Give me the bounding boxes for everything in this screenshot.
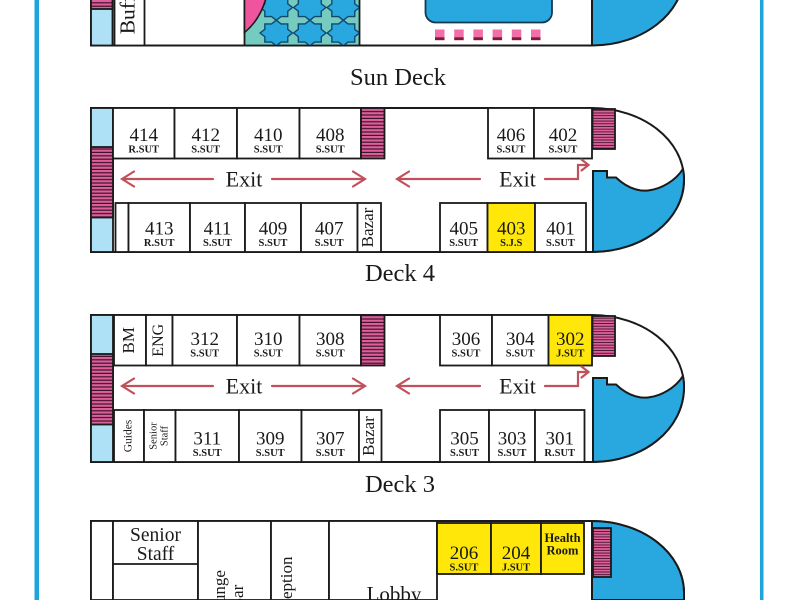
svg-text:S.SUT: S.SUT xyxy=(549,145,578,156)
svg-text:Buffet: Buffet xyxy=(115,0,139,34)
svg-text:ENG: ENG xyxy=(150,323,167,356)
svg-text:Sun Deck: Sun Deck xyxy=(350,64,447,91)
svg-text:Room: Room xyxy=(547,544,580,558)
svg-text:412: 412 xyxy=(192,125,221,146)
svg-text:S.SUT: S.SUT xyxy=(256,448,285,459)
svg-text:Lobby: Lobby xyxy=(367,582,422,600)
svg-text:301: 301 xyxy=(546,429,575,450)
svg-text:311: 311 xyxy=(193,429,221,450)
svg-text:206: 206 xyxy=(450,543,479,564)
svg-text:Deck 3: Deck 3 xyxy=(365,471,435,498)
svg-text:S.SUT: S.SUT xyxy=(193,448,222,459)
svg-text:410: 410 xyxy=(254,125,283,146)
svg-text:Deck 4: Deck 4 xyxy=(365,260,435,287)
svg-text:S.SUT: S.SUT xyxy=(254,145,283,156)
svg-text:Senior: Senior xyxy=(149,422,160,450)
svg-text:Guides: Guides xyxy=(123,419,135,452)
svg-text:S.SUT: S.SUT xyxy=(450,563,479,574)
svg-text:S.SUT: S.SUT xyxy=(316,349,345,360)
svg-text:S.SUT: S.SUT xyxy=(497,145,526,156)
svg-text:J.SUT: J.SUT xyxy=(556,349,584,360)
svg-text:Bar: Bar xyxy=(228,584,247,600)
svg-text:304: 304 xyxy=(506,329,535,350)
svg-text:409: 409 xyxy=(259,219,288,240)
svg-text:Staff: Staff xyxy=(160,425,171,446)
svg-text:Exit: Exit xyxy=(226,374,263,399)
svg-text:S.SUT: S.SUT xyxy=(450,448,479,459)
svg-text:Lounge: Lounge xyxy=(210,570,229,600)
svg-text:S.SUT: S.SUT xyxy=(546,238,575,249)
svg-text:J.SUT: J.SUT xyxy=(502,563,530,574)
svg-text:Senior: Senior xyxy=(130,525,181,546)
svg-text:S.SUT: S.SUT xyxy=(259,238,288,249)
svg-text:Exit: Exit xyxy=(499,167,536,192)
svg-text:S.J.S: S.J.S xyxy=(500,238,522,249)
svg-text:413: 413 xyxy=(145,219,174,240)
svg-text:403: 403 xyxy=(497,219,526,240)
svg-text:308: 308 xyxy=(316,329,345,350)
svg-text:306: 306 xyxy=(452,329,481,350)
svg-text:S.SUT: S.SUT xyxy=(203,238,232,249)
svg-text:BM: BM xyxy=(119,327,138,353)
svg-text:R.SUT: R.SUT xyxy=(144,238,175,249)
svg-text:S.SUT: S.SUT xyxy=(316,145,345,156)
svg-text:S.SUT: S.SUT xyxy=(254,349,283,360)
svg-text:411: 411 xyxy=(204,219,232,240)
svg-text:Bazar: Bazar xyxy=(359,416,378,456)
svg-text:402: 402 xyxy=(549,125,578,146)
svg-text:408: 408 xyxy=(316,125,345,146)
svg-text:Exit: Exit xyxy=(499,374,536,399)
svg-text:S.SUT: S.SUT xyxy=(452,349,481,360)
svg-text:S.SUT: S.SUT xyxy=(498,448,527,459)
svg-text:S.SUT: S.SUT xyxy=(315,238,344,249)
svg-text:S.SUT: S.SUT xyxy=(191,145,220,156)
svg-text:414: 414 xyxy=(130,125,159,146)
svg-text:307: 307 xyxy=(316,429,345,450)
svg-text:401: 401 xyxy=(546,219,575,240)
svg-text:Reception: Reception xyxy=(277,556,296,600)
svg-text:312: 312 xyxy=(191,329,220,350)
svg-text:303: 303 xyxy=(498,429,527,450)
svg-text:407: 407 xyxy=(315,219,344,240)
svg-text:R.SUT: R.SUT xyxy=(544,448,575,459)
svg-text:Staff: Staff xyxy=(137,544,175,565)
svg-text:305: 305 xyxy=(450,429,479,450)
svg-text:S.SUT: S.SUT xyxy=(506,349,535,360)
svg-text:204: 204 xyxy=(502,543,531,564)
svg-text:Bazar: Bazar xyxy=(358,207,377,247)
svg-text:302: 302 xyxy=(556,329,585,350)
svg-text:310: 310 xyxy=(254,329,283,350)
svg-text:Exit: Exit xyxy=(226,167,263,192)
svg-text:R.SUT: R.SUT xyxy=(128,145,159,156)
svg-text:S.SUT: S.SUT xyxy=(190,349,219,360)
svg-text:405: 405 xyxy=(450,219,479,240)
svg-text:406: 406 xyxy=(497,125,526,146)
svg-text:S.SUT: S.SUT xyxy=(449,238,478,249)
svg-text:S.SUT: S.SUT xyxy=(316,448,345,459)
svg-text:309: 309 xyxy=(256,429,285,450)
